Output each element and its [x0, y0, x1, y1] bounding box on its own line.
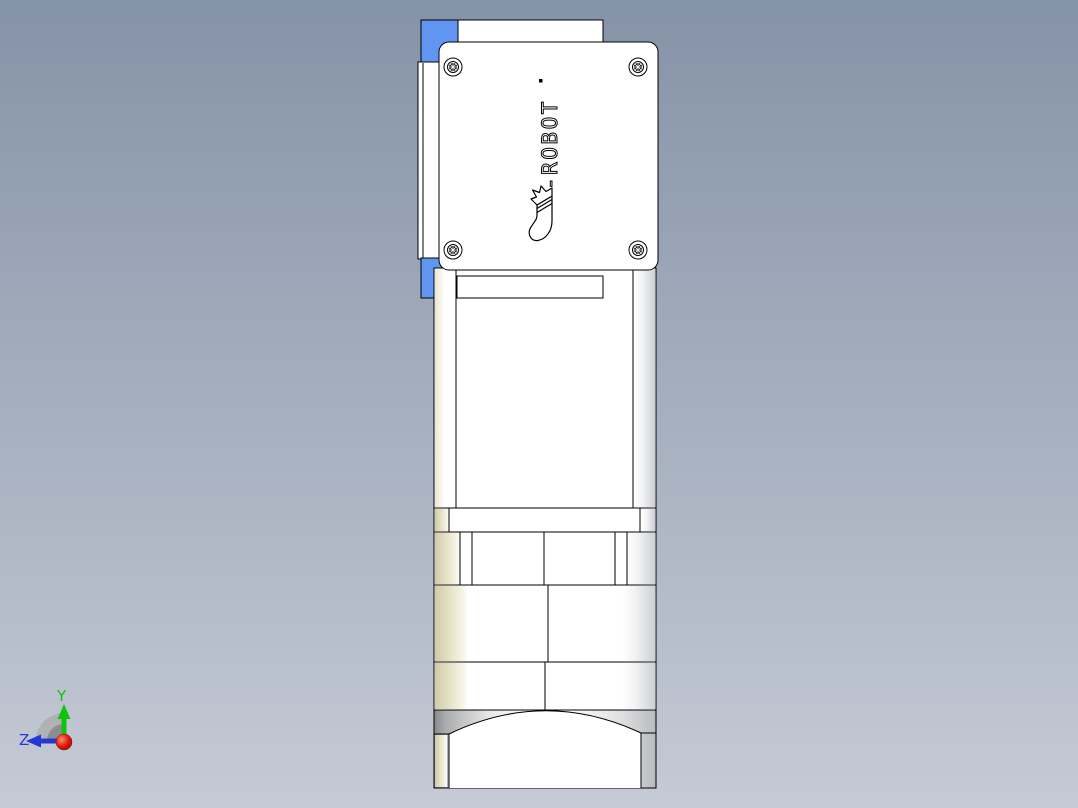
gearbox-section-3 [434, 662, 656, 710]
gearbox-section-1 [434, 532, 656, 585]
gearbox-flange [434, 508, 656, 532]
screw-bottom-left [444, 241, 462, 259]
y-axis-label: Y [56, 687, 67, 705]
stepper-motor-model[interactable]: -ROBOT [418, 20, 658, 788]
face-plate: -ROBOT [439, 42, 658, 270]
cad-viewport[interactable]: -ROBOT Y Z [0, 0, 1078, 808]
brand-logo-text: -ROBOT [538, 99, 562, 190]
z-axis-label: Z [19, 731, 29, 749]
screw-top-left [444, 58, 462, 76]
motor-body [434, 268, 656, 508]
screw-top-right [629, 58, 647, 76]
viewport-3d-canvas[interactable]: -ROBOT Y Z [0, 0, 1078, 808]
bottom-cap [434, 710, 656, 788]
trademark-mark [539, 79, 543, 83]
x-axis-origin-sphere [56, 734, 72, 750]
gearbox-section-2 [434, 585, 656, 662]
bracket-side-strip [418, 62, 439, 259]
screw-bottom-right [629, 241, 647, 259]
bracket-lower-flange [457, 276, 603, 298]
